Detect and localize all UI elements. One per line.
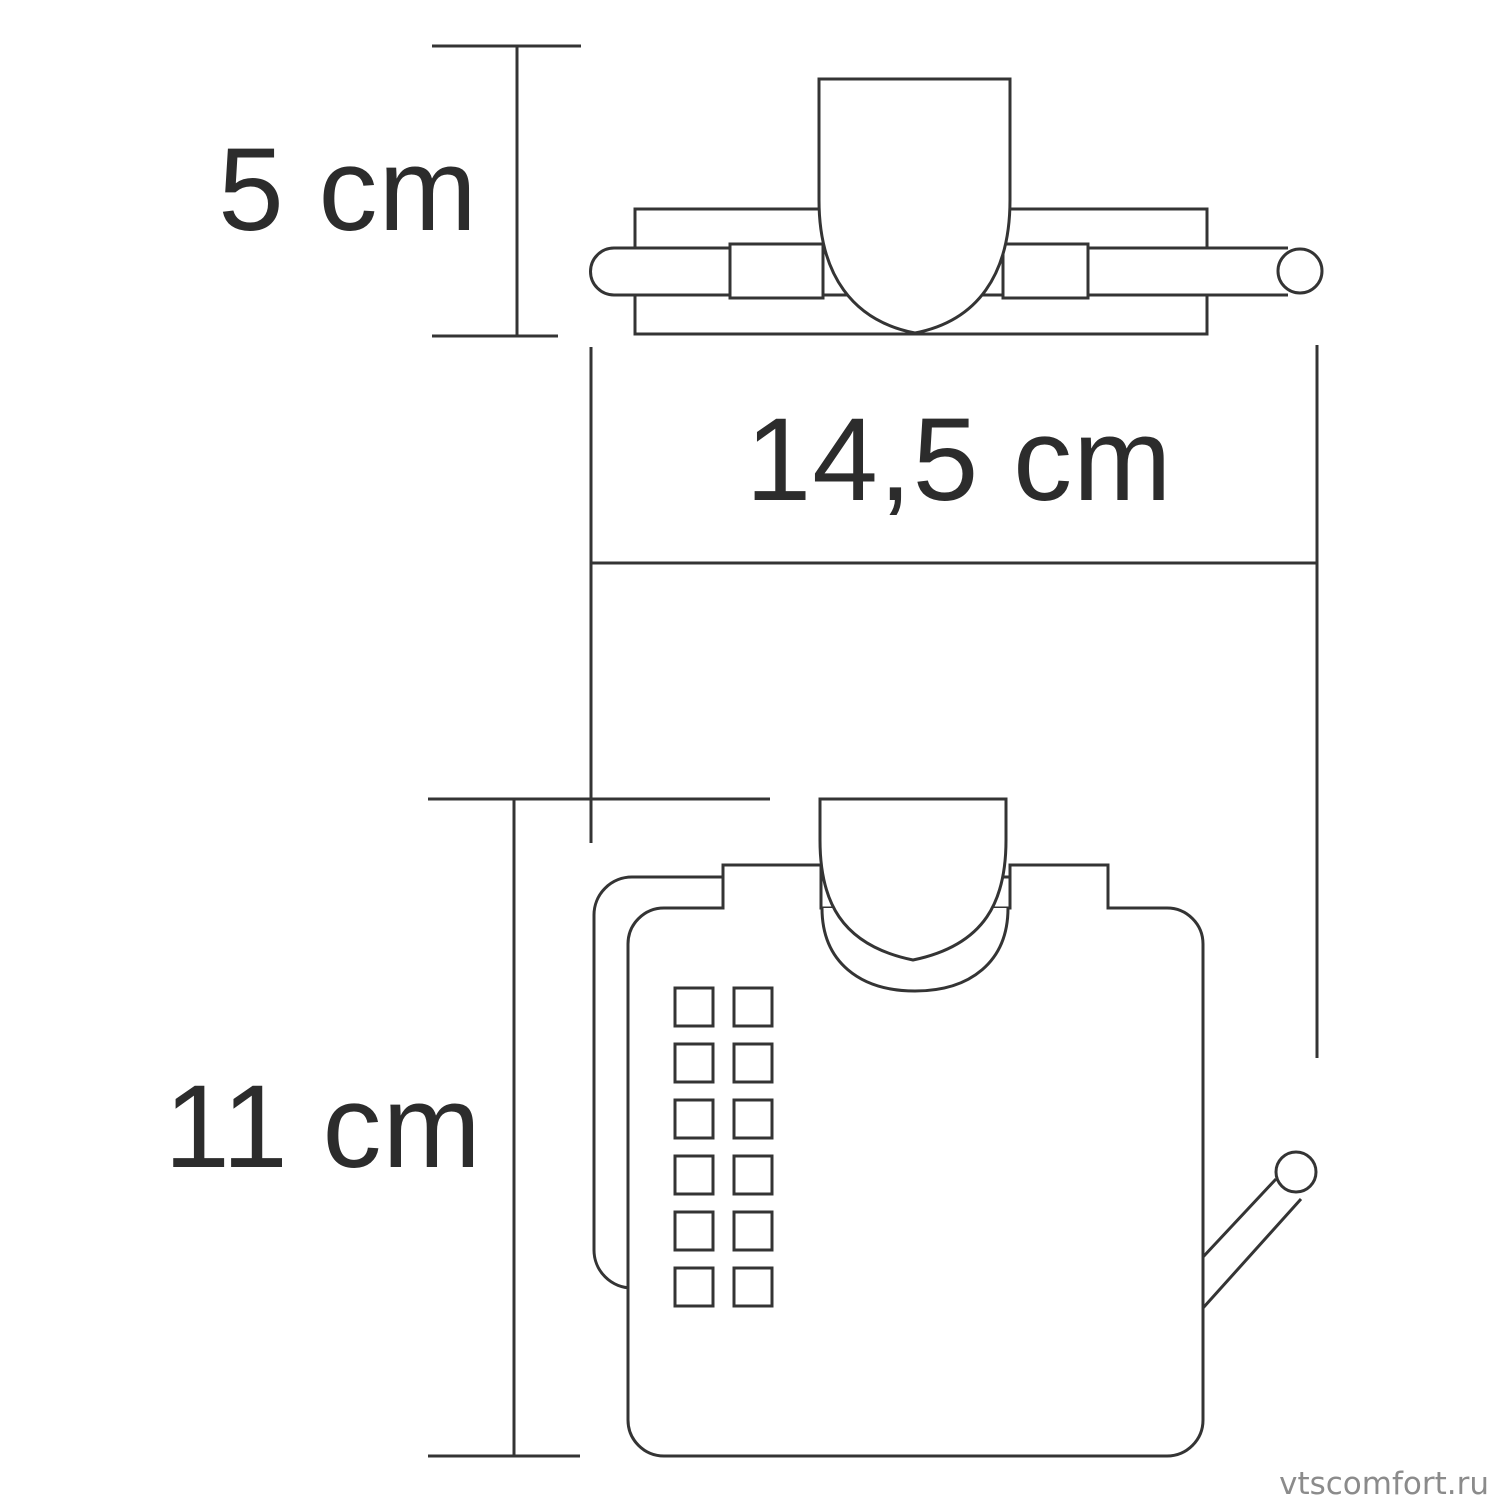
- watermark-text: vtscomfort.ru: [1279, 1466, 1489, 1502]
- product-dimension-diagram: 5 cm 14,5 cm 11 cm vtscomfort.ru: [0, 0, 1503, 1504]
- width-dimension-label: 14,5 cm: [746, 401, 1173, 519]
- front-view: [594, 799, 1316, 1456]
- bar-end-cap: [1278, 249, 1322, 293]
- mount-bracket-top-view: [819, 79, 1010, 333]
- right-clamp-top-view: [1003, 244, 1088, 298]
- lever-knob: [1276, 1152, 1316, 1192]
- depth-dimension-label: 5 cm: [218, 131, 478, 249]
- top-view: [591, 79, 1323, 334]
- left-clamp-top-view: [730, 244, 823, 298]
- lever-top-edge: [1203, 1179, 1276, 1257]
- height-dimension-label: 11 cm: [164, 1068, 482, 1186]
- lever-bottom-edge: [1203, 1199, 1301, 1308]
